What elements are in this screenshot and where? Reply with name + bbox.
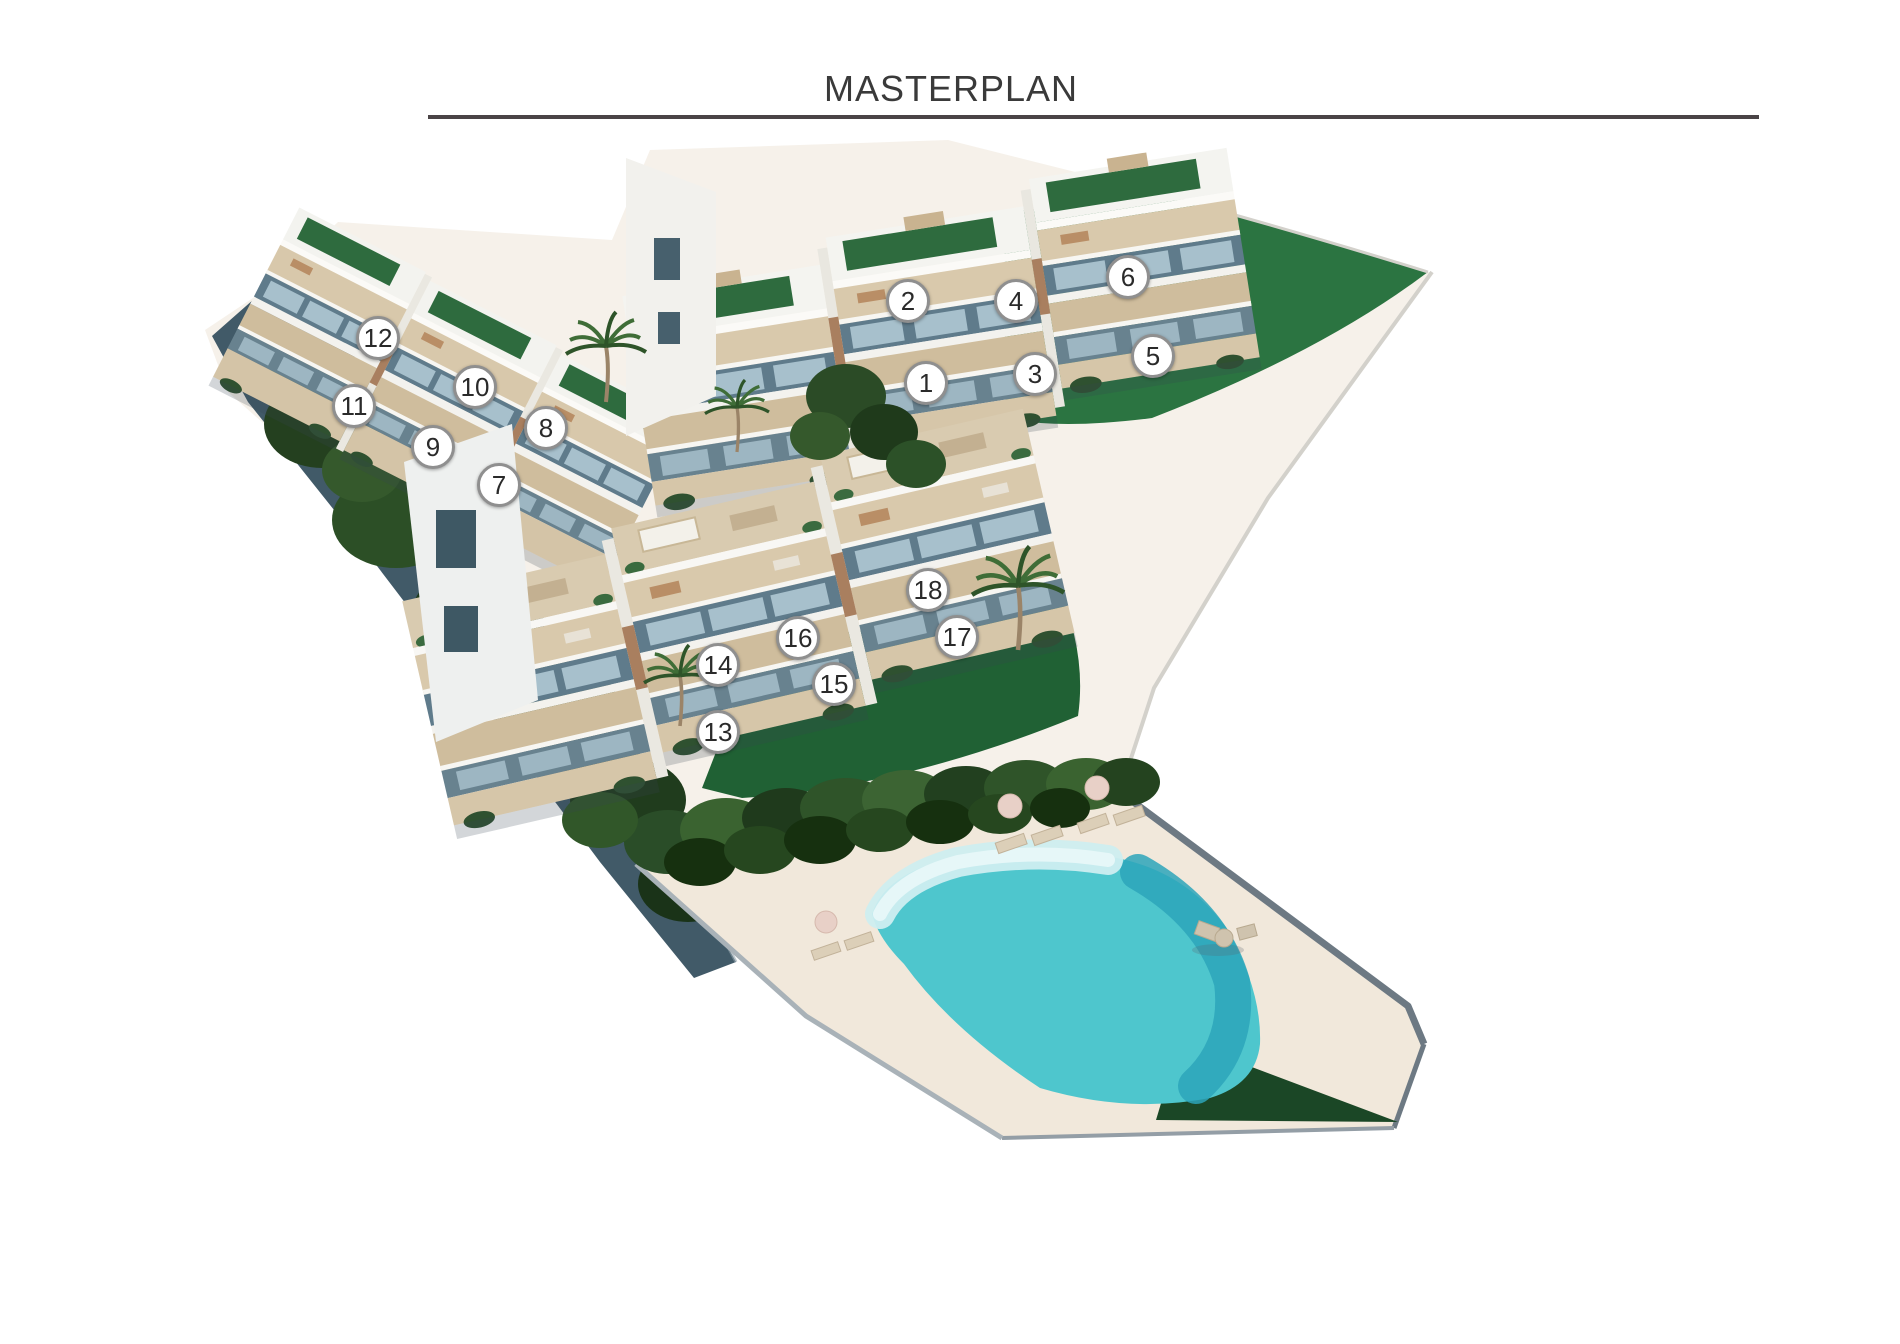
unit-marker-11[interactable]: 11 <box>332 384 376 428</box>
unit-marker-15[interactable]: 15 <box>812 662 856 706</box>
unit-marker-14[interactable]: 14 <box>696 643 740 687</box>
unit-marker-12[interactable]: 12 <box>356 316 400 360</box>
unit-marker-7[interactable]: 7 <box>477 463 521 507</box>
unit-marker-2[interactable]: 2 <box>886 279 930 323</box>
unit-markers-layer: 123456789101112131415161718 <box>0 0 1900 1344</box>
unit-marker-10[interactable]: 10 <box>453 365 497 409</box>
unit-marker-6[interactable]: 6 <box>1106 255 1150 299</box>
unit-marker-18[interactable]: 18 <box>906 568 950 612</box>
unit-marker-3[interactable]: 3 <box>1013 352 1057 396</box>
masterplan-page: MASTERPLAN <box>0 0 1900 1344</box>
unit-marker-16[interactable]: 16 <box>776 616 820 660</box>
unit-marker-13[interactable]: 13 <box>696 710 740 754</box>
unit-marker-4[interactable]: 4 <box>994 279 1038 323</box>
unit-marker-9[interactable]: 9 <box>411 425 455 469</box>
unit-marker-1[interactable]: 1 <box>904 361 948 405</box>
unit-marker-17[interactable]: 17 <box>935 615 979 659</box>
unit-marker-5[interactable]: 5 <box>1131 334 1175 378</box>
unit-marker-8[interactable]: 8 <box>524 406 568 450</box>
